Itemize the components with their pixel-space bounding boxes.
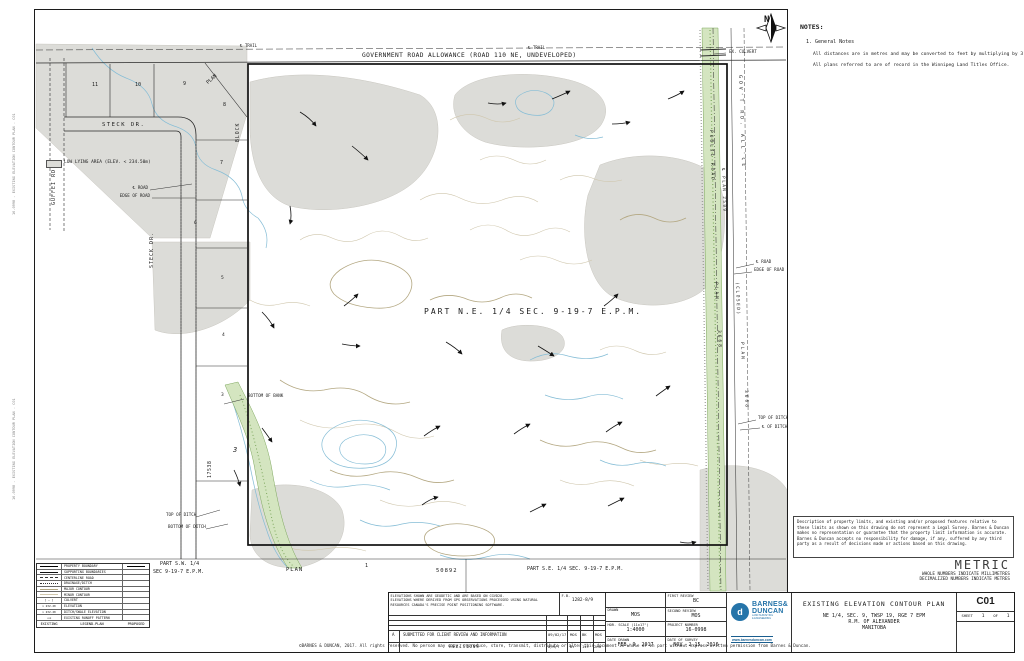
legend-header-proposed: PROPOSED	[123, 622, 149, 626]
revision-description: SUBMITTED FOR CLIENT REVIEW AND INFORMAT…	[403, 633, 507, 638]
disclaimer-box: Description of property limits, and exis…	[793, 516, 1014, 558]
legend-symbol	[37, 592, 62, 597]
plan-label-corridor-a: PLAN	[713, 282, 719, 301]
logo-website-link[interactable]: www.barnesduncan.com	[731, 636, 773, 643]
logo-tagline-2: & ENGINEERING	[752, 618, 788, 621]
legend-proposed-symbol	[122, 564, 149, 569]
legend-symbol	[37, 581, 62, 586]
sheet-label: SHEET	[961, 614, 972, 619]
elevation-notes-cell: ELEVATIONS SHOWN ARE GEODETIC AND ARE BA…	[389, 593, 559, 615]
cl-of-ditch-label-right: ℄ OF DITCH	[762, 425, 787, 430]
plan-2509-label: ℄ PLAN 2509	[720, 168, 726, 213]
legend-proposed-symbol	[122, 592, 149, 597]
edge-of-road-callout-left: EDGE OF ROAD	[102, 194, 150, 199]
plan-label-corridor-b: PLAN	[739, 342, 745, 361]
legend-symbol: × 232.20	[37, 610, 62, 615]
trail-label-2: ℄ TRAIL	[528, 46, 545, 51]
low-lying-areas	[36, 44, 787, 591]
plan-label-bottom: PLAN	[286, 567, 303, 573]
lot-number: 4	[222, 333, 225, 338]
drawing-title-cell: EXISTING ELEVATION CONTOUR PLAN NE 1/4, …	[791, 593, 956, 652]
revision-letter: A	[392, 633, 395, 638]
revision-first-check: BK	[582, 633, 587, 637]
sheet-total: 1	[1007, 614, 1010, 619]
second-review-cell: SECOND REVIEW MOS	[665, 607, 726, 621]
scale-value: 1:4000	[606, 627, 665, 633]
revision-row: A SUBMITTED FOR CLIENT REVIEW AND INFORM…	[389, 630, 605, 642]
lot-number: 3	[221, 393, 224, 398]
lot-number: 7	[220, 161, 223, 167]
legend-proposed-symbol	[122, 575, 149, 580]
scale-cell: HOR. SCALE (11x17") 1:4000	[605, 621, 665, 636]
legend-symbol: ⟿	[37, 615, 62, 620]
steck-dr-label-h: STECK DR.	[102, 122, 145, 128]
low-lying-label: LOW LYING AREA (ELEV. < 234.50m)	[64, 160, 151, 165]
notes-line-distances: All distances are in metres and may be c…	[813, 52, 1024, 57]
low-lying-swatch	[46, 160, 62, 168]
plot-stamp-bottom: 16-0998 - EXISTING ELEVATION CONTOUR PLA…	[12, 398, 16, 500]
fieldbook-value: 1282-8/9	[560, 598, 605, 603]
notes-line-plans: All plans referred to are of record in t…	[813, 63, 1009, 68]
legend-proposed-symbol	[122, 581, 149, 586]
lot-number: 5	[221, 276, 224, 281]
lot-number: 11	[92, 83, 98, 89]
project-number-value: 16-0998	[666, 627, 726, 633]
legend-label: CENTERLINE ROAD	[62, 576, 122, 580]
plan-3668-label-b: 3668	[743, 390, 749, 409]
guffei-rd-label: GUFFEI RD.	[52, 165, 58, 205]
part-sw-label-1: PART S.W. 1/4	[160, 562, 199, 568]
svg-text:N: N	[764, 15, 769, 25]
legend-proposed-symbol	[122, 598, 149, 603]
sheet-empty-cell	[957, 621, 1014, 642]
block-label: BLOCK	[236, 123, 242, 142]
notes-item-general: 1. General Notes	[806, 40, 854, 46]
drawing-title: EXISTING ELEVATION CONTOUR PLAN	[792, 601, 956, 608]
project-number-cell: PROJECT NUMBER 16-0998	[665, 621, 726, 636]
legend-label: DITCH/SWALE ELEVATION	[62, 610, 122, 614]
parcel-label: PART N.E. 1/4 SEC. 9-19-7 E.P.M.	[424, 307, 642, 316]
notes-heading: NOTES:	[800, 24, 823, 31]
lot-1-label: 1	[365, 564, 368, 570]
legend-header: EXISTING LEGEND-PLAN PROPOSED	[37, 621, 149, 627]
sheet-of-label: OF	[993, 614, 998, 619]
trail-label-1: ℄ TRAIL	[240, 44, 257, 49]
notes-panel: NOTES: 1. General Notes All distances ar…	[787, 9, 1014, 592]
metric-line-2: DECIMALIZED NUMBERS INDICATE METRES	[919, 577, 1010, 582]
legend-label: PROPERTY BOUNDARY	[62, 564, 122, 568]
revision-second-check: MOS	[595, 633, 602, 637]
second-review-value: MOS	[666, 613, 726, 619]
copyright-line: ©BARNES & DUNCAN, 2017. All rights reser…	[299, 643, 811, 648]
road-allowance-label: GOVERNMENT ROAD ALLOWANCE (ROAD 110 NE, …	[362, 52, 577, 59]
first-review-cell: FIRST REVIEW BC	[665, 593, 726, 607]
metric-block: METRIC WHOLE NUMBERS INDICATE MILLIMETRE…	[919, 558, 1010, 582]
legend-label: MINOR CONTOUR	[62, 593, 122, 597]
legend-label: MAJOR CONTOUR	[62, 587, 122, 591]
logo-name-line1: BARNES&	[752, 601, 788, 608]
legend-proposed-symbol	[122, 615, 149, 620]
legend-symbol	[37, 575, 62, 580]
plot-stamp-top: 16-0998 - EXISTING ELEVATION CONTOUR PLA…	[12, 113, 16, 215]
edge-of-road-callout-right: EDGE OF ROAD	[754, 268, 784, 273]
legend-label: EXISTING RUNOFF PATTERN	[62, 616, 122, 620]
fieldbook-cell: F.B. 1282-8/9	[559, 593, 605, 615]
legend-symbol	[37, 587, 62, 592]
bottom-of-bank-label: BOTTOM OF BANK	[248, 394, 283, 399]
legend-proposed-symbol	[122, 587, 149, 592]
steck-dr-label-v: STECK DR.	[150, 232, 156, 268]
part-sw-label-2: SEC 9-19-7 E.P.M.	[153, 570, 204, 576]
bottom-of-ditch-label-left: BOTTOM OF DITCH	[168, 525, 206, 530]
part-se-label: PART S.E. 1/4 SEC. 9-19-7 E.P.M.	[527, 567, 623, 573]
plan-50892-label: 50892	[436, 568, 458, 574]
barnes-duncan-logo-icon: d	[731, 603, 749, 621]
top-of-ditch-label-left: TOP OF DITCH	[166, 513, 196, 518]
plan-3668-label-a: 3668	[716, 330, 722, 349]
sheet-number-cell: C01 SHEET 1 OF 1	[956, 593, 1014, 652]
north-arrow-icon: N	[757, 14, 785, 42]
top-of-ditch-label-right: TOP OF DITCH	[758, 416, 788, 421]
legend-header-title: LEGEND-PLAN	[61, 622, 123, 626]
legend-header-existing: EXISTING	[37, 622, 61, 626]
legend-symbol: [ — ]	[37, 598, 62, 603]
ex-culvert-label: EX. CULVERT	[729, 50, 757, 55]
legend-label: DRAINAGE/DITCH	[62, 581, 122, 585]
drawing-subtitle-province: MANITOBA	[792, 626, 956, 632]
revision-by: MOS	[570, 633, 577, 637]
legend-label: ELEVATION	[62, 604, 122, 608]
lot-number: 8	[223, 103, 226, 109]
elevation-note-line: ELEVATIONS WHERE DERIVED FROM GPS OBSERV…	[389, 598, 559, 603]
legend-label: SUPPORTING BOUNDARIES	[62, 570, 122, 574]
drawn-cell: DRAWN MOS	[605, 607, 665, 621]
empty-cell	[605, 593, 665, 607]
legend-symbol	[37, 570, 62, 575]
revision-date: 09/02/17	[548, 633, 566, 637]
sheet-number: C01	[957, 596, 1014, 608]
legend-proposed-symbol	[122, 570, 149, 575]
plan-17538-label: 17538	[208, 461, 214, 478]
first-review-value: BC	[666, 598, 726, 604]
drawn-value: MOS	[606, 612, 665, 618]
lot-number: 6	[194, 221, 197, 226]
metric-title: METRIC	[919, 558, 1010, 572]
sheet-page: 1	[982, 614, 985, 619]
drawing-sheet: N ℄ TRAIL ℄ TRAIL GOVERNMENT ROAD ALLOWA…	[0, 0, 1024, 661]
legend-symbol	[37, 564, 62, 569]
legend-proposed-symbol	[122, 604, 149, 609]
legend-table: PROPERTY BOUNDARY SUPPORTING BOUNDARIES …	[36, 563, 150, 628]
legend-symbol: × 232.20	[37, 604, 62, 609]
legend-proposed-symbol	[122, 610, 149, 615]
lot-number: 10	[135, 83, 141, 89]
cl-road-callout-left: ℄ ROAD	[118, 186, 148, 191]
elevation-note-line: RESOURCES CANADA'S PRECISE POINT POSITIO…	[389, 602, 559, 607]
cl-road-callout-right: ℄ ROAD	[756, 260, 771, 265]
legend-label: CULVERT	[62, 598, 122, 602]
lot-number: 9	[183, 82, 186, 88]
block-number-label: 3	[233, 446, 237, 454]
